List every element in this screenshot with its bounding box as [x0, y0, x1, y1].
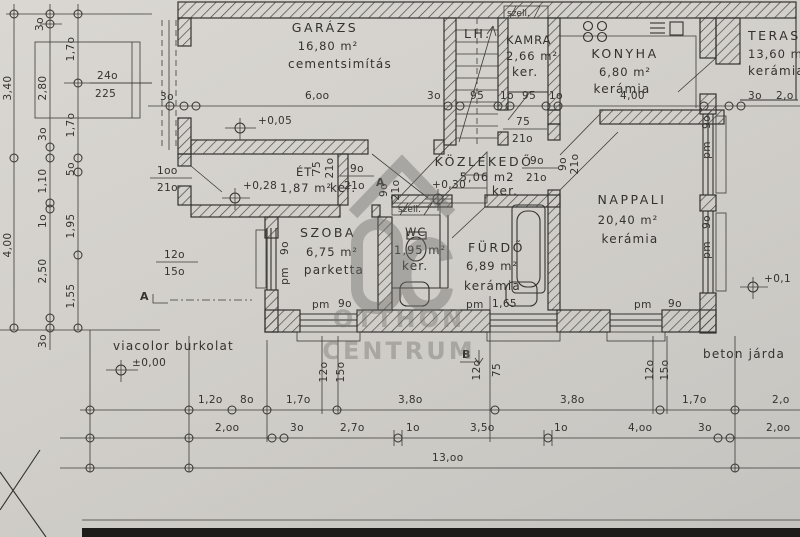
room-area: 20,40 m²	[598, 213, 658, 227]
dim-label: 15o	[164, 266, 185, 278]
dim-label: 15o	[659, 360, 671, 381]
room-finish: kerámia	[748, 64, 800, 78]
dim-label: 12o	[644, 360, 656, 381]
dim-label: 13,oo	[432, 452, 464, 464]
dim-label: 9o	[701, 215, 713, 229]
floor-plan-drawing: 3o 3,40 4,00 2,80 3o 1,10 1o 2,50 3o 1,7…	[0, 0, 800, 537]
room-finish: cementsimítás	[288, 57, 392, 71]
dim-label: 9o	[530, 155, 544, 167]
driveway-apron	[35, 42, 140, 118]
dim-label: 1o	[37, 214, 49, 228]
dim-label: 1,10	[37, 169, 49, 194]
stove-icon	[584, 22, 607, 42]
dim-label: 1,2o	[198, 394, 223, 406]
room-name: GARÁZS	[292, 20, 358, 35]
room-furdo: FÜRDŐ 6,89 m² kerámia	[464, 239, 525, 293]
room-name: KAMRA	[506, 33, 552, 47]
dim-label: 21o	[512, 133, 533, 145]
room-area: 5,06 m2	[460, 170, 515, 184]
dim-label: 21o	[344, 180, 365, 192]
dim-label: 9o	[279, 241, 291, 255]
dim-label: 3,40	[2, 76, 14, 101]
dim-label: 3,8o	[398, 394, 423, 406]
dim-label: 12o	[164, 249, 185, 261]
dim-label: 225	[95, 88, 116, 100]
watermark-line1: OTTHON	[333, 305, 465, 333]
dim-label: 3,5o	[470, 422, 495, 434]
room-finish: kerámia	[464, 279, 521, 293]
room-name: KÖZLEKEDŐ	[435, 153, 534, 169]
room-kozlekedo: KÖZLEKEDŐ 5,06 m2 ker.	[435, 153, 534, 198]
dim-label: 1,7o	[65, 113, 77, 138]
dim-label: 3o	[290, 422, 304, 434]
dim-label: 21o	[390, 180, 402, 201]
level-label: +0,1	[764, 273, 791, 285]
room-area: 13,60 m²	[748, 47, 800, 61]
dim-label: 21o	[157, 182, 178, 194]
room-name: KONYHA	[591, 46, 658, 61]
dim-label: 3o	[34, 17, 46, 31]
paving-label-right: beton járda	[703, 347, 785, 361]
room-name: FÜRDŐ	[468, 239, 525, 255]
room-name: NAPPALI	[598, 192, 667, 207]
dim-label: 3,8o	[560, 394, 585, 406]
dim-label: 24o	[97, 70, 118, 82]
dim-label: 1,7o	[682, 394, 707, 406]
dim-label: 2,50	[37, 259, 49, 284]
room-area: 6,89 m²	[466, 259, 518, 273]
dim-label: 1o	[406, 422, 420, 434]
garage-door-size: 24o 225	[90, 70, 152, 100]
dim-label: pm	[466, 299, 484, 311]
vent-label: szell.	[398, 205, 421, 215]
dim-label: 1oo	[157, 165, 178, 177]
dim-label: 2,7o	[340, 422, 365, 434]
room-konyha: KONYHA 6,80 m² kerámia	[591, 46, 658, 96]
sink-icon	[650, 22, 683, 35]
dim-label: 5o	[65, 162, 77, 176]
dim-label: 2,80	[37, 76, 49, 101]
level-label: +0,05	[258, 115, 292, 127]
dim-label: 3o	[427, 90, 441, 102]
dim-label: 21o	[324, 158, 336, 179]
room-finish: kerámia	[602, 232, 659, 246]
dim-label: 75	[311, 161, 323, 175]
dim-label: 75	[516, 116, 530, 128]
dim-label: pm	[701, 141, 713, 159]
room-area: 1,87 m²	[280, 181, 332, 195]
dim-label: 1,7o	[65, 37, 77, 62]
dim-label: 1,95	[65, 214, 77, 239]
room-name: LH.	[464, 26, 492, 41]
dim-label: pm	[312, 299, 330, 311]
room-area: 6,80 m²	[599, 65, 651, 79]
garage-door	[162, 20, 176, 150]
dim-label: 1,7o	[286, 394, 311, 406]
room-area: 2,66 m²	[506, 49, 558, 63]
room-area: 16,80 m²	[298, 39, 358, 53]
dim-label: 8o	[240, 394, 254, 406]
room-garazs: GARÁZS 16,80 m² cementsimítás	[288, 20, 392, 71]
dim-label: 9o	[701, 115, 713, 129]
scanned-floor-plan: 3o 3,40 4,00 2,80 3o 1,10 1o 2,50 3o 1,7…	[0, 0, 800, 537]
dim-label: 1,65	[492, 298, 517, 310]
room-finish: ker.	[492, 184, 518, 198]
dim-label: 3o	[37, 127, 49, 141]
room-nappali: NAPPALI 20,40 m² kerámia	[598, 192, 667, 246]
dim-label: pm	[279, 267, 291, 285]
watermark-line2: CENTRUM	[322, 337, 475, 365]
room-area: 6,75 m²	[306, 245, 358, 259]
dim-label: 3o	[37, 334, 49, 348]
dim-label: 9o	[557, 157, 569, 171]
dim-label: 9o	[668, 298, 682, 310]
paving-label-left: viacolor burkolat	[113, 339, 234, 353]
scan-edge	[0, 450, 800, 537]
level-label: +0,28	[243, 180, 277, 192]
dim-label: 6,oo	[305, 90, 329, 102]
level-label: +0,30	[432, 179, 466, 191]
room-name: WC	[405, 225, 426, 239]
dim-label: 2,oo	[215, 422, 239, 434]
dim-label: 3o	[698, 422, 712, 434]
room-name: TERASZ	[747, 28, 800, 43]
dim-label: 4,oo	[628, 422, 652, 434]
vent-label: szell.	[507, 9, 530, 19]
dim-label: 4,00	[2, 233, 14, 258]
section-a-label: A	[140, 290, 149, 303]
dim-label: pm	[701, 241, 713, 259]
room-lh: LH.	[464, 26, 492, 41]
dim-label: 21o	[569, 154, 581, 175]
level-label: ±0,00	[132, 357, 166, 369]
room-terasz: TERASZ 13,60 m² kerámia	[747, 28, 800, 78]
dim-label: pm	[634, 299, 652, 311]
left-dimension-chains: 3o 3,40 4,00 2,80 3o 1,10 1o 2,50 3o 1,7…	[0, 4, 160, 350]
dim-label: 1,55	[65, 284, 77, 309]
room-finish: kerámia	[594, 82, 651, 96]
dim-label: 2,oo	[766, 422, 790, 434]
dim-label: 21o	[526, 172, 547, 184]
room-finish: ker.	[512, 65, 538, 79]
dim-label: 9o	[350, 163, 364, 175]
dim-label: 75	[491, 363, 503, 377]
dim-label: 1o	[554, 422, 568, 434]
dim-label: 2,o	[772, 394, 790, 406]
room-name: SZOBA	[300, 225, 356, 240]
